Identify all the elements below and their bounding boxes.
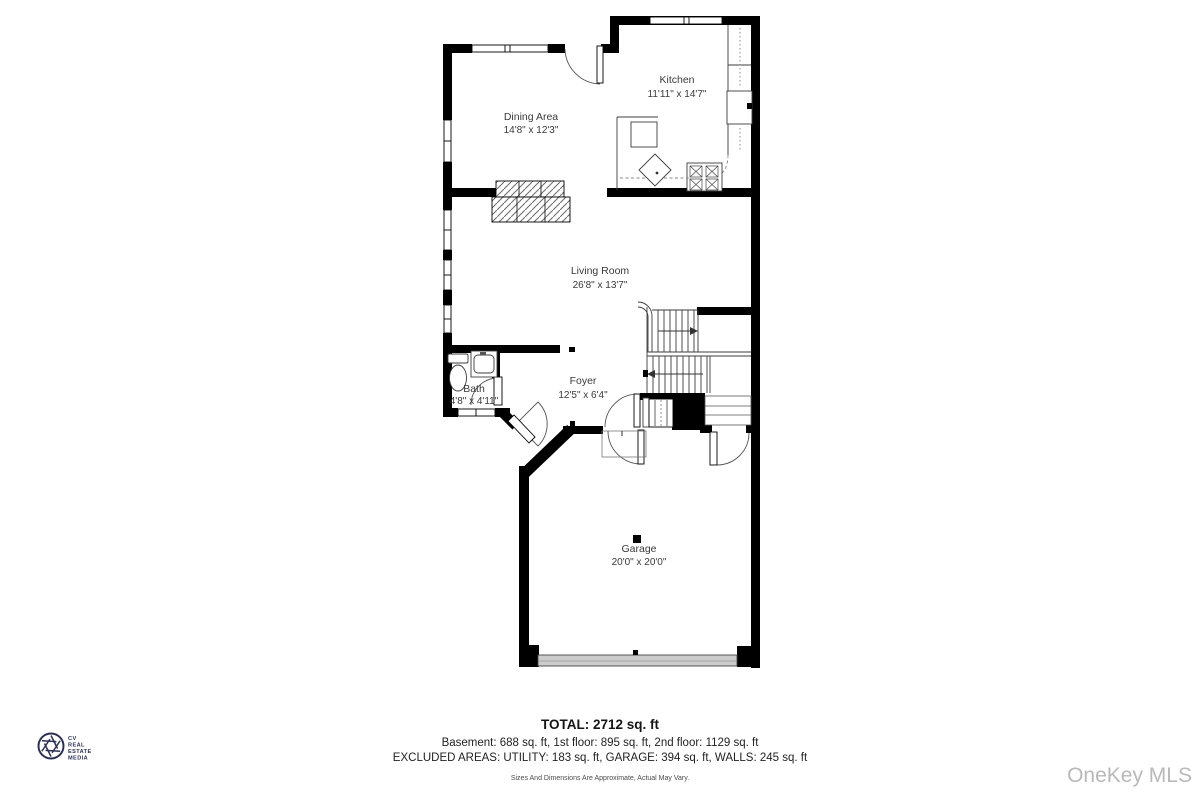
room-dims-foyer: 12'5" x 6'4" — [558, 390, 608, 401]
stove — [687, 163, 722, 191]
disclaimer-text: Sizes And Dimensions Are Approximate, Ac… — [511, 775, 689, 782]
kitchen-peninsula — [617, 117, 690, 190]
floor-areas-text: Basement: 688 sq. ft, 1st floor: 895 sq.… — [442, 737, 760, 749]
door-angled-entry — [508, 402, 547, 446]
foyer-closet — [643, 398, 673, 427]
door-dining-kitchen — [565, 46, 603, 84]
room-label-garage: Garage — [621, 543, 656, 555]
window-living-left-1 — [444, 210, 451, 250]
mudroom-shelves — [705, 396, 751, 425]
excluded-areas-text: EXCLUDED AREAS: UTILITY: 183 sq. ft, GAR… — [393, 752, 808, 764]
door-front-outswing — [608, 430, 644, 464]
aperture-icon — [39, 734, 64, 759]
walls — [443, 16, 760, 668]
room-label-foyer: Foyer — [570, 375, 597, 387]
door-garage-entry — [710, 432, 749, 465]
window-dining-top — [472, 45, 548, 52]
window-living-left-3 — [444, 305, 451, 333]
floor-plan-canvas: Kitchen 11'11" x 14'7" Dining Area 14'8"… — [0, 0, 1200, 800]
doors — [471, 46, 749, 465]
island-cabinet — [631, 122, 657, 147]
room-labels: Kitchen 11'11" x 14'7" Dining Area 14'8"… — [450, 74, 707, 568]
corner-sink — [639, 154, 671, 186]
stair-handrail — [638, 302, 652, 352]
window-dining-left — [444, 120, 451, 162]
stair-newel — [643, 370, 648, 377]
garage-post — [633, 535, 641, 543]
logo-line-2: REAL — [68, 743, 85, 749]
logo-wordmark: CV REAL ESTATE MEDIA — [68, 736, 92, 762]
staircase — [638, 302, 751, 393]
logo-line-1: CV — [68, 736, 77, 742]
room-label-kitchen: Kitchen — [659, 74, 694, 86]
fireplace — [492, 181, 570, 222]
room-label-bath: Bath — [463, 383, 485, 395]
photographer-logo: CV REAL ESTATE MEDIA — [39, 734, 92, 762]
area-summary: TOTAL: 2712 sq. ft Basement: 688 sq. ft,… — [393, 717, 808, 782]
room-label-dining: Dining Area — [504, 111, 558, 123]
room-dims-dining: 14'8" x 12'3" — [504, 125, 559, 136]
bath-sink — [471, 351, 497, 377]
mls-watermark: OneKey MLS — [1067, 764, 1192, 787]
kitchen-fixtures — [617, 25, 752, 191]
window-bath — [458, 409, 495, 416]
logo-line-3: ESTATE — [68, 749, 92, 755]
room-dims-bath: 4'8" x 4'11" — [450, 396, 499, 407]
room-label-living: Living Room — [571, 265, 630, 277]
room-dims-garage: 20'0" x 20'0" — [612, 557, 667, 568]
room-dims-kitchen: 11'11" x 14'7" — [648, 89, 707, 100]
window-living-left-2 — [444, 260, 451, 290]
room-dims-living: 26'8" x 13'7" — [573, 280, 628, 291]
logo-line-4: MEDIA — [68, 756, 88, 762]
total-area-text: TOTAL: 2712 sq. ft — [541, 717, 660, 732]
garage-door — [538, 650, 737, 666]
window-kitchen-top — [650, 17, 722, 24]
door-front-inswing — [605, 394, 640, 427]
